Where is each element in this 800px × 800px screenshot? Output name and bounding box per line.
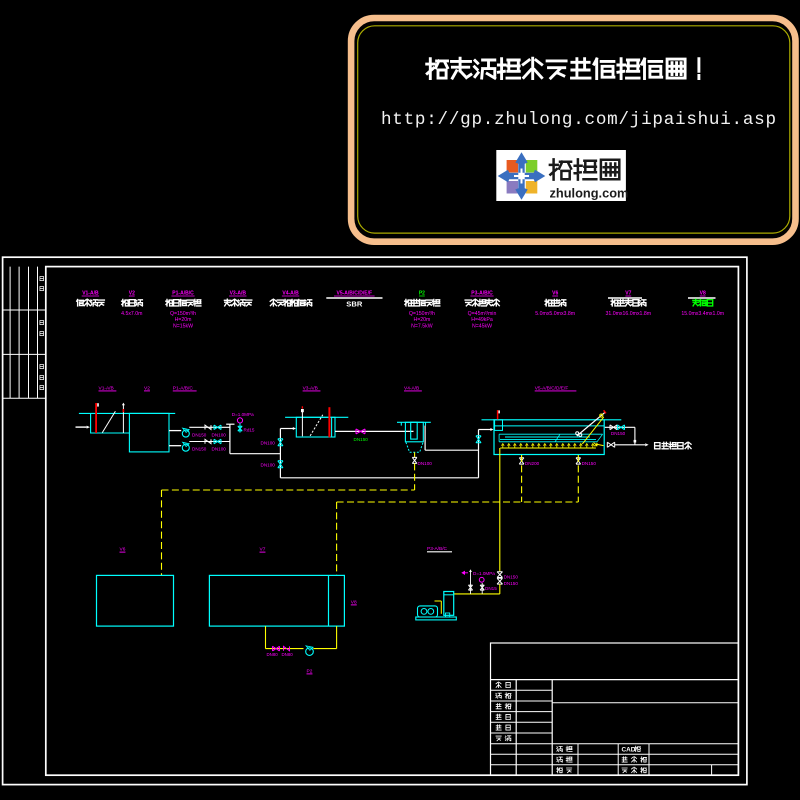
svg-text:DN150: DN150 xyxy=(504,581,519,586)
svg-text:DN100: DN100 xyxy=(212,433,227,438)
svg-text:D=1.0MPa: D=1.0MPa xyxy=(473,571,495,576)
svg-text:DN100: DN100 xyxy=(261,463,276,468)
svg-text:V5-A/B/C/D/E/F: V5-A/B/C/D/E/F xyxy=(535,385,569,391)
svg-text:N=45kW: N=45kW xyxy=(472,324,492,330)
svg-text:DN200: DN200 xyxy=(525,461,540,466)
svg-text:V4-A/B: V4-A/B xyxy=(404,385,419,391)
svg-text:DN100: DN100 xyxy=(261,441,276,446)
svg-text:V3-A/B: V3-A/B xyxy=(303,385,318,391)
svg-text:DN150: DN150 xyxy=(611,431,626,436)
svg-text:V6: V6 xyxy=(120,547,126,553)
svg-text:D=1.0MPa: D=1.0MPa xyxy=(232,412,254,417)
svg-text:DN100: DN100 xyxy=(212,447,227,452)
svg-text:31.0mx16.0mx1.8m: 31.0mx16.0mx1.8m xyxy=(606,311,652,317)
svg-text:DN80: DN80 xyxy=(282,652,294,657)
svg-text:Q=150m³/h: Q=150m³/h xyxy=(409,311,435,317)
svg-text:V2: V2 xyxy=(144,385,150,391)
svg-text:N=7.5kW: N=7.5kW xyxy=(411,324,433,330)
svg-text:15.0mx3.4mx1.0m: 15.0mx3.4mx1.0m xyxy=(681,311,724,317)
svg-text:P3-A/B/C: P3-A/B/C xyxy=(427,546,448,552)
svg-text:Q=45m³/min: Q=45m³/min xyxy=(468,311,497,317)
svg-text:P2: P2 xyxy=(307,668,313,674)
svg-text:4.5x7.0m: 4.5x7.0m xyxy=(121,311,142,317)
svg-text:DN150: DN150 xyxy=(192,433,207,438)
svg-text:5.0mx5.0mx3.8m: 5.0mx5.0mx3.8m xyxy=(535,311,575,317)
svg-text:DN150: DN150 xyxy=(582,461,597,466)
svg-text:zhulong.com: zhulong.com xyxy=(550,186,629,201)
svg-text:H=20m: H=20m xyxy=(175,317,192,323)
svg-text:P1-A/B/C: P1-A/B/C xyxy=(173,385,194,391)
svg-text:DN150: DN150 xyxy=(192,447,207,452)
svg-text:V7: V7 xyxy=(260,547,266,553)
svg-text:http://gp.zhulong.com/jipaishu: http://gp.zhulong.com/jipaishui.asp xyxy=(381,110,777,130)
svg-text:CAD: CAD xyxy=(622,747,636,754)
svg-text:Rd15: Rd15 xyxy=(244,428,255,433)
svg-text:DN150: DN150 xyxy=(504,574,519,579)
svg-text:Q=150m³/h: Q=150m³/h xyxy=(170,311,196,317)
svg-text:DN150: DN150 xyxy=(354,437,369,442)
svg-text:DN15: DN15 xyxy=(485,586,497,591)
svg-text:N=15kW: N=15kW xyxy=(173,324,193,330)
svg-text:DN100: DN100 xyxy=(418,461,433,466)
svg-text:SBR: SBR xyxy=(346,299,363,308)
svg-text:V1-A/B: V1-A/B xyxy=(99,385,114,391)
svg-text:H=20m: H=20m xyxy=(413,317,430,323)
svg-text:V8: V8 xyxy=(351,599,357,605)
svg-text:DN80: DN80 xyxy=(267,652,279,657)
svg-text:H=49kPa: H=49kPa xyxy=(471,317,493,323)
